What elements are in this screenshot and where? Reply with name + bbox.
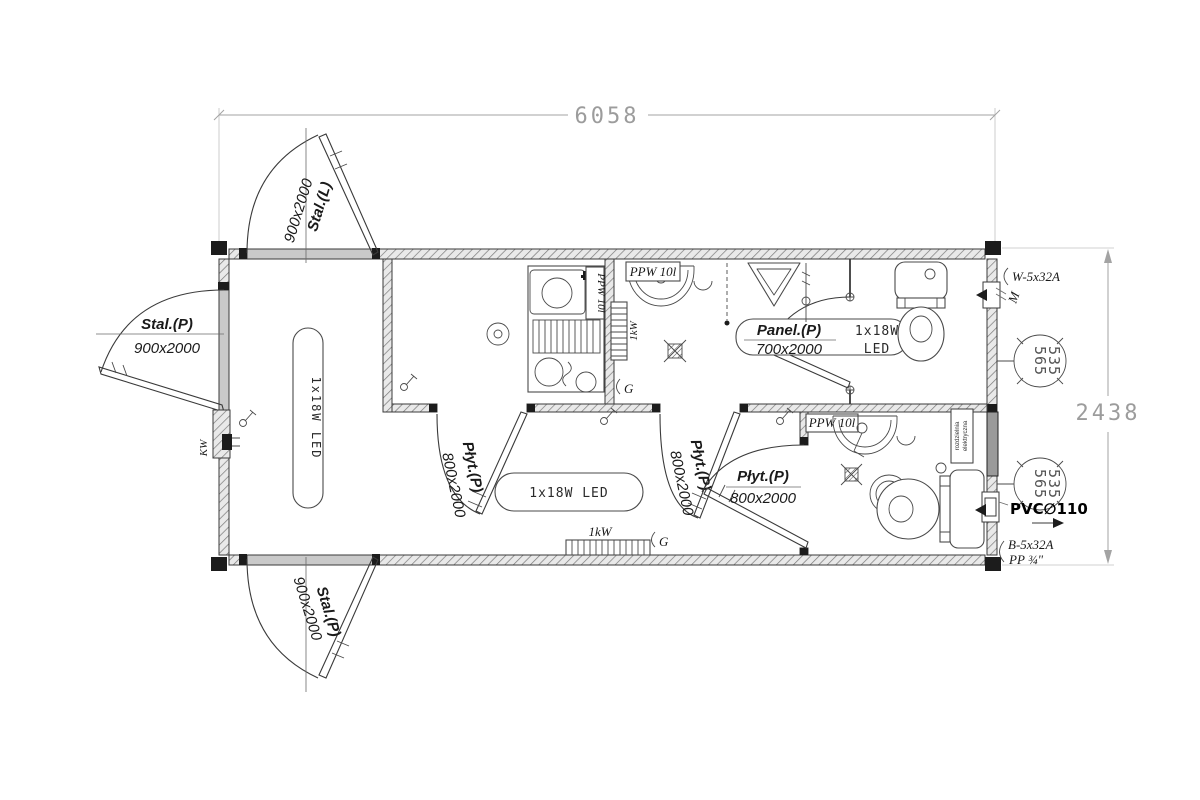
wc-label-capsule: Panel.(P) 700x2000 1x18W LED: [736, 319, 908, 358]
corridor-radiator-label: 1kW: [588, 524, 612, 539]
electrical-panel: rozdzielnia elektryczna: [951, 409, 998, 476]
door-top-left: Stal.(L) 900x2000: [247, 128, 378, 263]
lamp-hall: 1x18W LED: [293, 328, 323, 508]
door-bathroom: Płyt.(P) 800x2000: [702, 445, 808, 548]
bathroom-floor-drain: [841, 464, 862, 485]
vent-pipe: [802, 263, 810, 322]
cable-entry: KW: [198, 410, 240, 458]
pvc-outlet-label: PVC∅110: [1010, 500, 1088, 518]
towel-ring-icon: [897, 436, 915, 445]
water-supply-label: PP ¾": [1008, 552, 1044, 567]
electrical-panel-line1: rozdzielnia: [955, 421, 961, 450]
corridor-radiator: 1kW: [566, 524, 650, 555]
washroom-radiator: 1kW: [611, 302, 640, 360]
kitchen-floor-gully: [487, 323, 509, 345]
wc-toilet: [895, 262, 947, 361]
meter-label: M: [1004, 289, 1023, 306]
door-wc-type: Panel.(P): [757, 322, 821, 339]
washroom-floor-drain: [664, 340, 686, 362]
lamp-corridor-label: 1x18W LED: [529, 486, 608, 501]
dimension-height-value: 2438: [1076, 401, 1141, 426]
floorplan-drawing: 6058 2438: [0, 0, 1200, 800]
door-entrance-size: 900x2000: [134, 340, 201, 357]
lamp-wc-watt: 1x18W: [855, 324, 899, 339]
corner-casting: [211, 241, 227, 255]
door-entrance-type: Stal.(P): [141, 316, 193, 333]
washroom-socket: G: [617, 379, 635, 396]
corner-casting: [985, 557, 1001, 571]
bathroom-water-heater-label: PPW 10l: [808, 415, 856, 430]
lamp-hall-label: 1x18W LED: [309, 376, 323, 459]
towel-ring-icon: [694, 281, 712, 290]
corridor-socket: G: [652, 532, 670, 549]
door-wc-size: 700x2000: [756, 341, 823, 358]
door-bathroom-size: 800x2000: [730, 490, 797, 507]
power-feed-top-label: W-5x32A: [1012, 269, 1060, 284]
kitchen-water-heater-label: PPW 10l: [595, 272, 607, 312]
washroom-radiator-label: 1kW: [628, 320, 640, 340]
feed-arrow-icon: [976, 289, 987, 301]
hall-kitchen-wall: [383, 259, 392, 412]
bottom-door-lintel: [247, 555, 373, 565]
light-switch-icon: [240, 410, 257, 427]
urinal-screen: [725, 263, 730, 326]
vent-bottom-dim2: 535: [1045, 469, 1063, 499]
washroom-socket-label: G: [624, 381, 634, 396]
corner-casting: [985, 241, 1001, 255]
urinal: [748, 263, 800, 306]
dimension-width-value: 6058: [575, 104, 640, 129]
electrical-panel-line2: elektryczna: [963, 420, 969, 451]
corner-casting: [211, 557, 227, 571]
container-floorplan-svg: 6058 2438: [0, 0, 1200, 800]
top-door-lintel: [247, 249, 373, 259]
door-washroom: Płyt.(P) 800x2000: [660, 412, 740, 518]
door-bathroom-type: Płyt.(P): [737, 468, 789, 485]
washroom-water-heater-label: PPW 10l: [629, 264, 677, 279]
flow-arrow-icon: [1053, 518, 1064, 528]
entrance-door-lintel: [219, 290, 229, 412]
bathroom-water-heater: PPW 10l: [806, 414, 858, 432]
kitchen-counter: PPW 10l: [528, 266, 607, 392]
power-feed-bottom-label: B-5x32A: [1008, 537, 1054, 552]
door-bottom-left: Stal.(P) 900x2000: [247, 557, 378, 692]
cable-entry-label: KW: [198, 439, 210, 457]
lamp-wc-type: LED: [864, 342, 890, 357]
vent-top: 565 535: [997, 335, 1066, 387]
washroom-water-heater: PPW 10l: [626, 262, 680, 281]
dimension-width: 6058: [214, 104, 1000, 244]
water-supply-labels: B-5x32A PP ¾": [1000, 537, 1054, 567]
lamp-corridor: 1x18W LED: [495, 473, 643, 511]
door-entrance: Stal.(P) 900x2000: [96, 290, 224, 412]
vent-top-dim2: 535: [1045, 346, 1063, 376]
corridor-socket-label: G: [659, 534, 669, 549]
light-switch-icon: [401, 374, 418, 391]
